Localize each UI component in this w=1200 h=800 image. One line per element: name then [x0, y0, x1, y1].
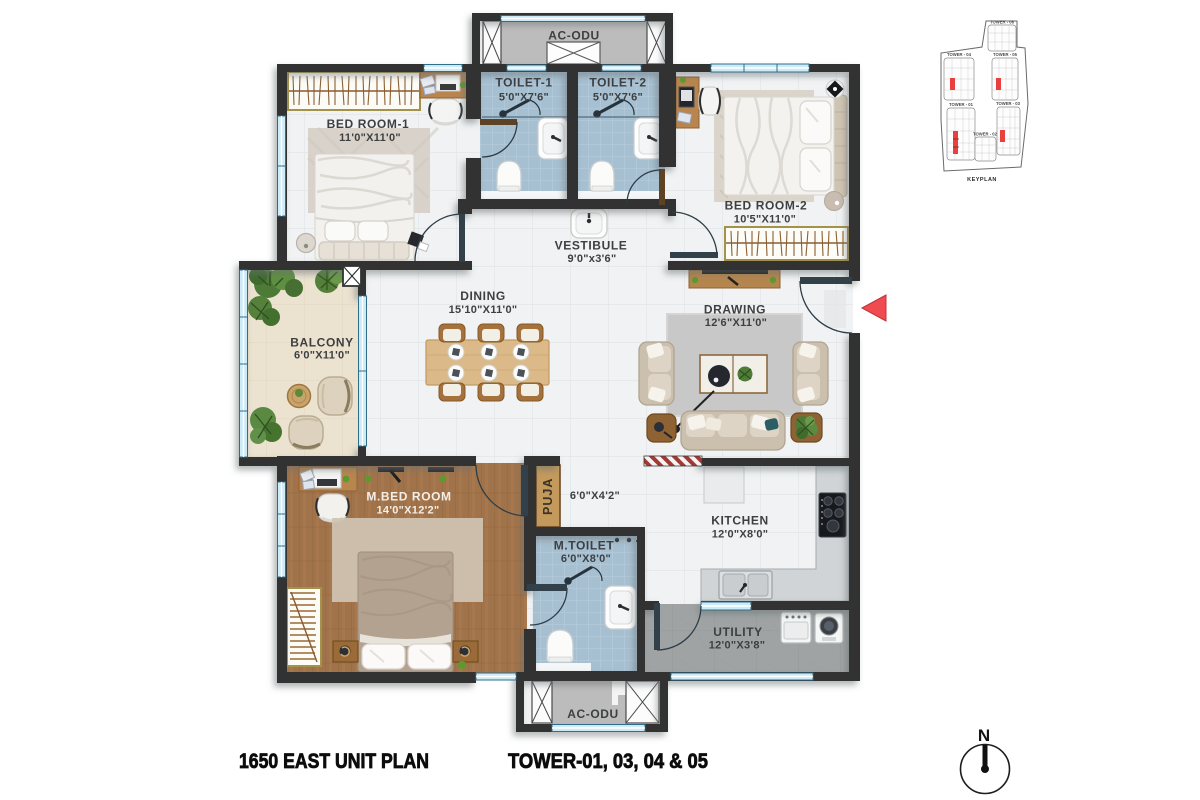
svg-text:TOWER - 03: TOWER - 03 — [996, 101, 1021, 106]
svg-text:AC-ODU: AC-ODU — [567, 707, 619, 721]
svg-text:BED ROOM-1: BED ROOM-1 — [327, 117, 410, 131]
svg-text:5'0"X7'6": 5'0"X7'6" — [499, 92, 549, 104]
svg-text:KITCHEN: KITCHEN — [711, 514, 769, 528]
svg-text:M.TOILET: M.TOILET — [554, 539, 615, 553]
svg-text:12'0"X3'8": 12'0"X3'8" — [709, 640, 766, 652]
svg-text:TOWER - 05: TOWER - 05 — [993, 52, 1018, 57]
svg-text:12'0"X8'0": 12'0"X8'0" — [712, 529, 769, 541]
svg-text:TOWER - 01: TOWER - 01 — [949, 102, 974, 107]
svg-text:10'5"X11'0": 10'5"X11'0" — [734, 214, 796, 226]
svg-text:TOWER-01, 03, 04 & 05: TOWER-01, 03, 04 & 05 — [508, 750, 708, 773]
svg-text:11'0"X11'0": 11'0"X11'0" — [339, 132, 401, 144]
svg-text:12'6"X11'0": 12'6"X11'0" — [705, 317, 767, 329]
svg-text:6'0"X11'0": 6'0"X11'0" — [294, 350, 350, 362]
svg-text:BALCONY: BALCONY — [290, 336, 354, 350]
svg-text:TOWER - 02: TOWER - 02 — [973, 132, 998, 137]
svg-text:BED ROOM-2: BED ROOM-2 — [725, 199, 808, 213]
svg-text:PUJA: PUJA — [541, 478, 555, 515]
svg-text:15'10"X11'0": 15'10"X11'0" — [449, 304, 518, 316]
svg-text:14'0"X12'2": 14'0"X12'2" — [376, 505, 439, 517]
svg-text:M.BED ROOM: M.BED ROOM — [366, 490, 451, 504]
svg-text:N: N — [978, 726, 990, 745]
svg-text:9'0"x3'6": 9'0"x3'6" — [568, 253, 617, 265]
svg-text:5'0"X7'6": 5'0"X7'6" — [593, 92, 643, 104]
svg-text:DINING: DINING — [460, 289, 506, 303]
svg-text:TOILET-1: TOILET-1 — [495, 76, 552, 90]
svg-text:TOILET-2: TOILET-2 — [589, 76, 646, 90]
svg-text:UTILITY: UTILITY — [713, 625, 763, 639]
svg-text:KEYPLAN: KEYPLAN — [967, 177, 997, 183]
svg-text:DRAWING: DRAWING — [704, 303, 766, 317]
svg-text:6'0"X8'0": 6'0"X8'0" — [561, 553, 611, 565]
svg-text:AC-ODU: AC-ODU — [548, 29, 600, 43]
svg-text:6'0"X4'2": 6'0"X4'2" — [570, 490, 620, 502]
svg-text:1650 EAST UNIT PLAN: 1650 EAST UNIT PLAN — [239, 750, 429, 773]
svg-text:VESTIBULE: VESTIBULE — [555, 239, 628, 253]
svg-text:TOWER - 04: TOWER - 04 — [947, 52, 972, 57]
svg-text:TOWER - 06: TOWER - 06 — [990, 20, 1015, 25]
